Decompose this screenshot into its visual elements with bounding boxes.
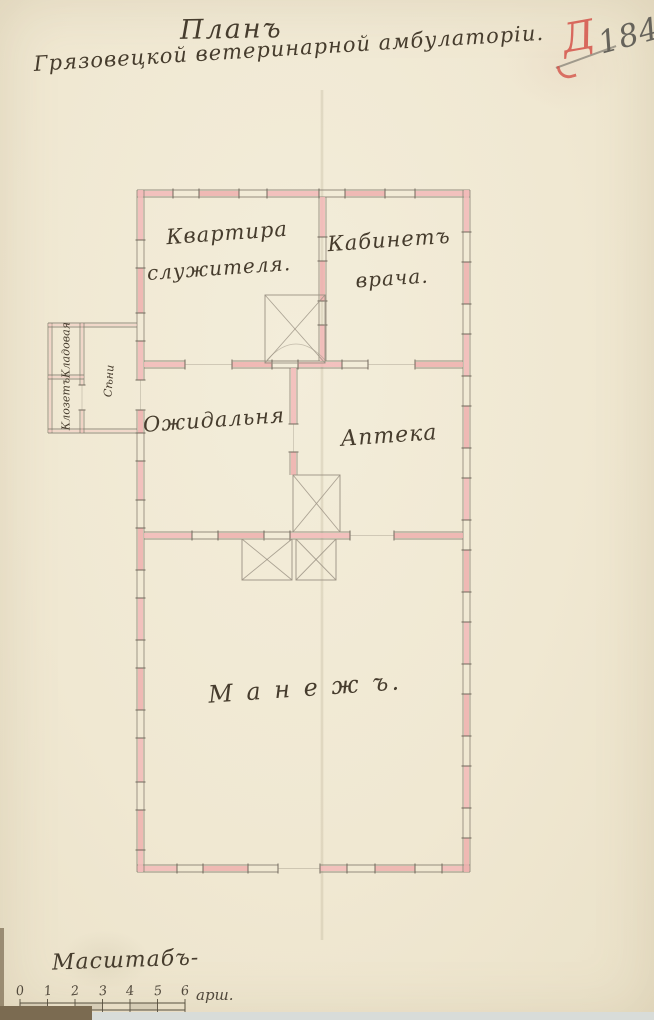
wall-interior-1 — [144, 360, 463, 370]
room-label-kabinet-line2: врача. — [355, 263, 430, 292]
pencil-arc — [267, 344, 325, 360]
red-mark-flourish — [556, 62, 576, 81]
page-edge-bottom-light — [92, 1012, 654, 1020]
wall-exterior-bottom — [137, 864, 470, 874]
wall-exterior-top — [137, 189, 470, 199]
floor-plan-drawing — [0, 0, 654, 1020]
wall-exterior-right — [462, 190, 472, 872]
page-edge-bottom-dark — [0, 1006, 92, 1020]
document-page: Планъ Грязовецкой ветеринарной амбулатор… — [0, 0, 654, 1020]
stove — [242, 539, 292, 580]
room-label-kladovaya: Кладовая — [60, 322, 73, 378]
room-label-klozet: Клозетъ — [60, 378, 73, 430]
page-edge-left — [0, 928, 4, 1014]
wall-interior-vertB — [289, 368, 299, 475]
wall-interior-vertA — [318, 197, 328, 361]
scale-unit: арш. — [196, 986, 234, 1004]
room-label-seni: Сѣни — [101, 364, 116, 397]
stove — [293, 475, 340, 532]
wall-exterior-left — [136, 190, 146, 872]
stove — [296, 539, 336, 580]
scale-title: Масштабъ- — [52, 945, 200, 975]
